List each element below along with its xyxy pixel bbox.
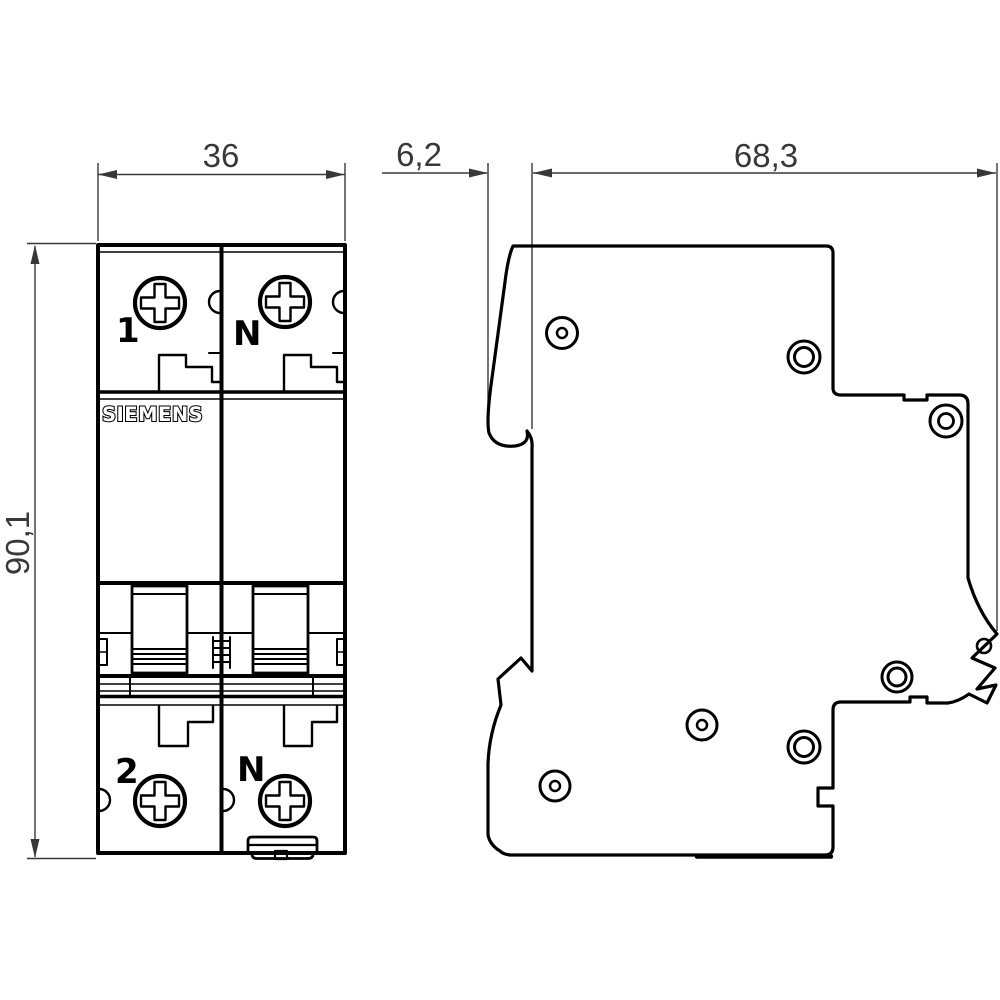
dimension-label-height: 90,1 [0,511,36,575]
screw-terminal-top-left [135,278,185,328]
dimension-body-depth: 68,3 [532,137,997,631]
screw-head [135,776,185,826]
pole-label-2: 2 [115,752,139,792]
rivet [882,662,912,692]
rivet-inner [888,668,906,686]
brand-label: SIEMENS [102,403,203,426]
arrowhead-right [977,169,996,178]
edge-bracket-left [99,639,107,665]
screw-terminal-top-right [260,277,310,327]
wire-notch [223,789,234,811]
screw-cross-slot [141,782,179,820]
rivet [788,731,820,763]
rivet-inner [557,328,567,338]
wire-notch [99,789,110,811]
terminal-step [284,706,337,746]
bottom-tab [248,837,317,859]
arrowhead-left [533,169,552,178]
screw-head [260,776,310,826]
rivet-inner [795,738,814,757]
technical-drawing-page: 36 90,1 6,2 68,3 [0,0,1000,1000]
rivet [547,318,578,349]
dimension-label-width: 36 [203,137,240,174]
dimension-label-body-depth: 68,3 [734,137,798,174]
side-view [488,246,997,857]
rivet-outer [788,731,820,763]
dimension-label-front-depth: 6,2 [396,136,442,173]
rivet-inner [795,348,814,367]
screw-head [135,278,185,328]
wire-notch [333,291,344,313]
screw-terminal-bottom-right [260,776,310,826]
terminal-step [284,355,345,392]
toggle-lever-right [253,586,308,673]
front-view: 1 N SIEMENS [98,245,345,859]
rivet-outer [788,341,820,373]
technical-drawing: 36 90,1 6,2 68,3 [0,0,1000,1000]
pole-label-1: 1 [116,311,140,351]
dimension-height: 90,1 [0,244,96,859]
screw-cross-slot [141,284,179,322]
rivet [687,710,717,740]
arrowhead-right [469,169,488,178]
pole-label-n-bottom: N [237,750,265,790]
arrowhead-up [31,245,40,264]
rivet-outer [540,771,570,801]
rivet-inner [550,781,560,791]
rivet [930,405,962,437]
pole-label-n-top: N [233,314,261,354]
rivet [788,341,820,373]
rivet-inner [697,720,707,730]
screw-head [260,277,310,327]
dimension-width: 36 [98,137,345,241]
toggle-lever-left [132,586,187,673]
terminal-step [159,355,220,392]
rivet-outer [930,405,962,437]
rivet-outer [687,710,717,740]
rivet-inner [939,414,954,429]
screw-terminal-bottom-left [135,776,185,826]
arrowhead-left [98,170,117,179]
wire-notch [209,291,220,313]
arrowhead-right [326,170,345,179]
dimension-front-depth: 6,2 [382,136,488,419]
rivet [540,771,570,801]
screw-cross-slot [266,283,304,321]
rivet-outer [547,318,578,349]
arrowhead-down [31,839,40,858]
screw-cross-slot [266,782,304,820]
terminal-step [159,706,213,746]
